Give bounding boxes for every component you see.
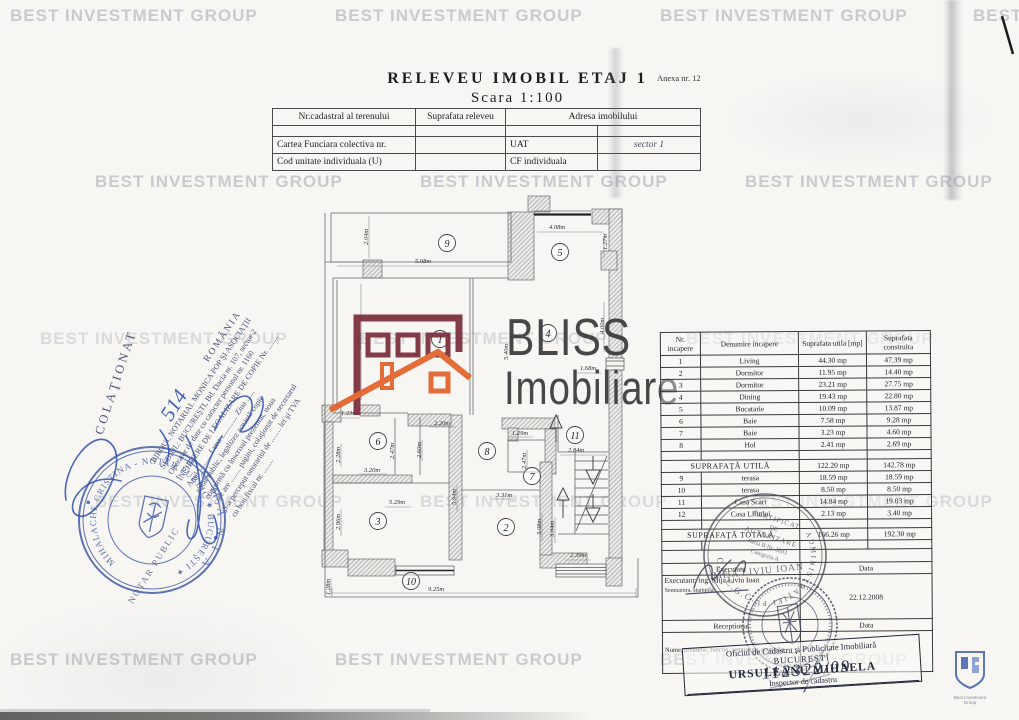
svg-text:3.31m: 3.31m	[495, 492, 512, 499]
room-table-cell: Bucatarie	[701, 402, 799, 415]
svg-text:9.25m: 9.25m	[428, 586, 444, 593]
svg-text:5.29m: 5.29m	[389, 499, 405, 506]
room-table-cell: 3	[661, 379, 701, 391]
document-title: RELEVEU IMOBIL ETAJ 1	[385, 70, 650, 88]
semnatura-label: Semnatura, stampila	[665, 587, 798, 594]
room-table-cell: 2.69 mp	[867, 438, 931, 450]
empty-cell	[868, 519, 932, 528]
suprafata-utila-label: SUPRAFAŢĂ UTILĂ	[661, 459, 799, 472]
svg-text:9: 9	[445, 239, 450, 250]
room-table-cell: 5	[661, 403, 701, 415]
empty-cell	[598, 154, 701, 171]
room-table-cell: Baie	[701, 414, 799, 427]
executant-cell: Executant: ing. Mija Liviu Ioan Semnatur…	[662, 574, 800, 620]
empty-cell	[416, 137, 506, 154]
room-table-cell: 4.60 mp	[867, 426, 931, 438]
room-table-cell: Casa Scari	[701, 495, 799, 508]
executant-header: Executant	[662, 562, 800, 575]
empty-cell	[416, 126, 506, 137]
room-table-cell: 10.09 mp	[799, 402, 867, 414]
room-table-cell: 9.28 mp	[867, 414, 931, 426]
document-title-block: RELEVEU IMOBIL ETAJ 1 Scara 1:100	[385, 70, 650, 107]
room-table-cell: 2	[661, 367, 701, 379]
big-logo: Best Investment Group	[948, 650, 992, 705]
svg-text:6: 6	[376, 437, 381, 448]
sector-value: sector 1	[598, 137, 701, 154]
room-table-cell: Dining	[701, 390, 799, 403]
svg-text:2.47m: 2.47m	[389, 443, 396, 459]
data-header: Data	[800, 562, 932, 575]
room-table-cell: 3.40 mp	[868, 507, 932, 519]
watermark: BEST INVESTMENT GROUP	[745, 172, 993, 192]
empty-cell	[661, 451, 701, 460]
room-table-cell: Dormitor	[701, 366, 799, 379]
room-table-cell: 18.59 mp	[867, 471, 931, 483]
room-table-cell: Casa Liftului	[702, 507, 800, 520]
room-table-cell: 12	[662, 508, 702, 520]
room-table-cell: 27.75 mp	[867, 378, 931, 390]
bliss-imobiliare-logo: BLISS Imobiliare	[320, 308, 685, 418]
room-table-cell: Living	[700, 354, 798, 367]
executant-name: Executant: ing. Mija Liviu Ioan	[665, 575, 798, 585]
room-table-cell: 4	[661, 391, 701, 403]
empty-cell	[506, 126, 598, 137]
svg-text:5.08m: 5.08m	[415, 258, 431, 265]
room-table-cell: terasa	[701, 471, 799, 484]
bliss-brand-sub: Imobiliare	[504, 364, 679, 411]
svg-text:3.08m: 3.08m	[536, 519, 543, 536]
room-table-cell: 22.80 mp	[867, 390, 931, 402]
empty-cell	[662, 520, 702, 529]
empty-cell	[416, 154, 506, 171]
room-rows-1-8: 1Living44.30 mp47.39 mp2Dormitor11.95 mp…	[660, 354, 931, 452]
room-table-cell: Hol	[701, 438, 799, 451]
suprafata-totala-label: SUPRAFAŢĂ TOTALĂ	[662, 528, 800, 541]
room-table-cell: 44.30 mp	[798, 354, 866, 366]
room-table-cell: 2.41 mp	[799, 438, 867, 450]
svg-text:2.04m: 2.04m	[363, 229, 370, 245]
svg-text:2.96m: 2.96m	[335, 514, 342, 530]
empty-cell	[800, 549, 932, 563]
suprafata-utila-value: 122.20 mp	[799, 459, 867, 471]
room-table-cell: 9	[661, 472, 701, 484]
empty-cell	[662, 541, 702, 550]
room-table-cell: 11.95 mp	[799, 366, 867, 378]
suprafata-utila-constr: 142.78 mp	[867, 459, 931, 471]
empty-cell	[800, 540, 868, 549]
data-header-2: Data	[800, 619, 932, 632]
col-header-construita: Suprafata construita	[866, 331, 930, 354]
svg-text:2.20m: 2.20m	[434, 420, 450, 427]
svg-text:3: 3	[375, 517, 381, 528]
room-table-cell: 47.39 mp	[866, 354, 930, 366]
empty-cell	[868, 540, 932, 549]
room-table-cell: Dormitor	[701, 378, 799, 391]
big-caption-2: Group	[948, 700, 992, 705]
svg-text:8: 8	[485, 447, 490, 458]
svg-text:1.27m: 1.27m	[602, 234, 609, 250]
empty-cell	[867, 450, 931, 459]
empty-cell	[800, 519, 868, 528]
empty-cell	[799, 450, 867, 459]
watermark: BEST INVESTMENT GROUP	[420, 172, 668, 192]
col-header-denumire: Denumire incapere	[700, 331, 798, 355]
watermark: BEST INVESTMENT GROUP	[335, 6, 583, 26]
svg-text:10: 10	[406, 577, 416, 588]
cadastral-nr-label: Nr.cadastral al terenului	[273, 109, 416, 126]
col-header-utila: Suprafata utila [mp]	[798, 331, 866, 354]
room-table-cell: 8.50 mp	[867, 483, 931, 495]
summary-utila: SUPRAFAŢĂ UTILĂ 122.20 mp 142.78 mp	[661, 450, 931, 473]
cartea-funciara-label: Cartea Funciara colectiva nr.	[273, 137, 416, 154]
room-table-cell: 14.40 mp	[867, 366, 931, 378]
watermark: BEST INVESTMENT GROUP	[335, 650, 583, 670]
room-table-cell: 23.21 mp	[799, 378, 867, 390]
room-table-cell: 8.50 mp	[799, 483, 867, 495]
suprafata-totala-constr: 192.30 mp	[868, 528, 932, 540]
cod-unitate-label: Cod unitate individuala (U)	[273, 154, 416, 171]
receptionat-header: Receptionat	[662, 619, 800, 632]
svg-text:5.94m: 5.94m	[451, 489, 458, 505]
room-table-cell: 19.43 mp	[799, 390, 867, 402]
watermark: BEST INVESTMENT GROUP	[660, 6, 908, 26]
room-table-cell: terasa	[701, 483, 799, 496]
room-table-cell: 18.59 mp	[799, 471, 867, 483]
room-table-cell: 13.87 mp	[867, 402, 931, 414]
suprafata-releveu-label: Suprafata releveu	[416, 109, 506, 126]
empty-cell	[273, 126, 416, 137]
room-areas-table: Nr. incapere Denumire incapere Suprafata…	[660, 330, 933, 674]
col-header-nr: Nr. incapere	[660, 332, 700, 355]
suprafata-totala-value: 166.26 mp	[800, 528, 868, 540]
svg-text:1.29m: 1.29m	[512, 430, 528, 437]
watermark: BEST INVESTMENT GROUP	[95, 172, 343, 192]
uat-label: UAT	[506, 137, 598, 154]
svg-text:2.39m: 2.39m	[570, 552, 586, 559]
date-cell: 22.12.2008	[800, 574, 932, 620]
watermark: BEST INVESTMENT GROUP	[10, 650, 258, 670]
watermark: BEST INVESTMENT GROUP	[10, 6, 258, 26]
room-table-cell: Baie	[701, 426, 799, 439]
svg-text:4.08m: 4.08m	[549, 224, 565, 231]
svg-text:2.84m: 2.84m	[568, 447, 584, 454]
svg-text:2: 2	[504, 523, 509, 534]
room-rows-9-12: 9terasa18.59 mp18.59 mp10terasa8.50 mp8.…	[661, 471, 931, 521]
cf-individuala-label: CF individuala	[506, 154, 598, 171]
bliss-brand-name: BLISS	[506, 312, 631, 364]
document-scale: Scara 1:100	[385, 90, 650, 107]
room-table-cell: 8	[661, 439, 701, 451]
room-table-cell: 11	[661, 496, 701, 508]
watermark: BEST INVESTMENT GROUP	[973, 6, 1019, 26]
svg-text:1.28m: 1.28m	[325, 579, 332, 595]
room-table-cell: 7	[661, 427, 701, 439]
svg-text:11: 11	[570, 431, 579, 442]
room-table-cell: 19.03 mp	[867, 495, 931, 507]
svg-text:2.28m: 2.28m	[335, 447, 342, 463]
big-shield-icon	[953, 650, 987, 690]
anexa-number: Anexa nr. 12	[657, 73, 701, 83]
svg-text:5: 5	[558, 248, 563, 259]
room-table-cell: 14.84 mp	[799, 495, 867, 507]
svg-text:3.20m: 3.20m	[363, 467, 380, 474]
empty-cell	[598, 126, 701, 137]
room-table-cell: 2.13 mp	[800, 507, 868, 519]
room-table-cell: 10	[661, 484, 701, 496]
svg-text:2.60m: 2.60m	[416, 442, 423, 458]
adresa-label: Adresa imobilului	[506, 109, 701, 126]
room-table-cell: 1	[660, 355, 700, 367]
svg-text:3.04m: 3.04m	[549, 521, 556, 538]
room-table-cell: 6	[661, 415, 701, 427]
room-table-cell: 7.58 mp	[799, 414, 867, 426]
room-table-cell: 3.23 mp	[799, 426, 867, 438]
svg-text:2.47m: 2.47m	[521, 453, 528, 469]
cadastral-header-table: Nr.cadastral al terenului Suprafata rele…	[272, 108, 701, 171]
empty-cell	[662, 549, 800, 563]
